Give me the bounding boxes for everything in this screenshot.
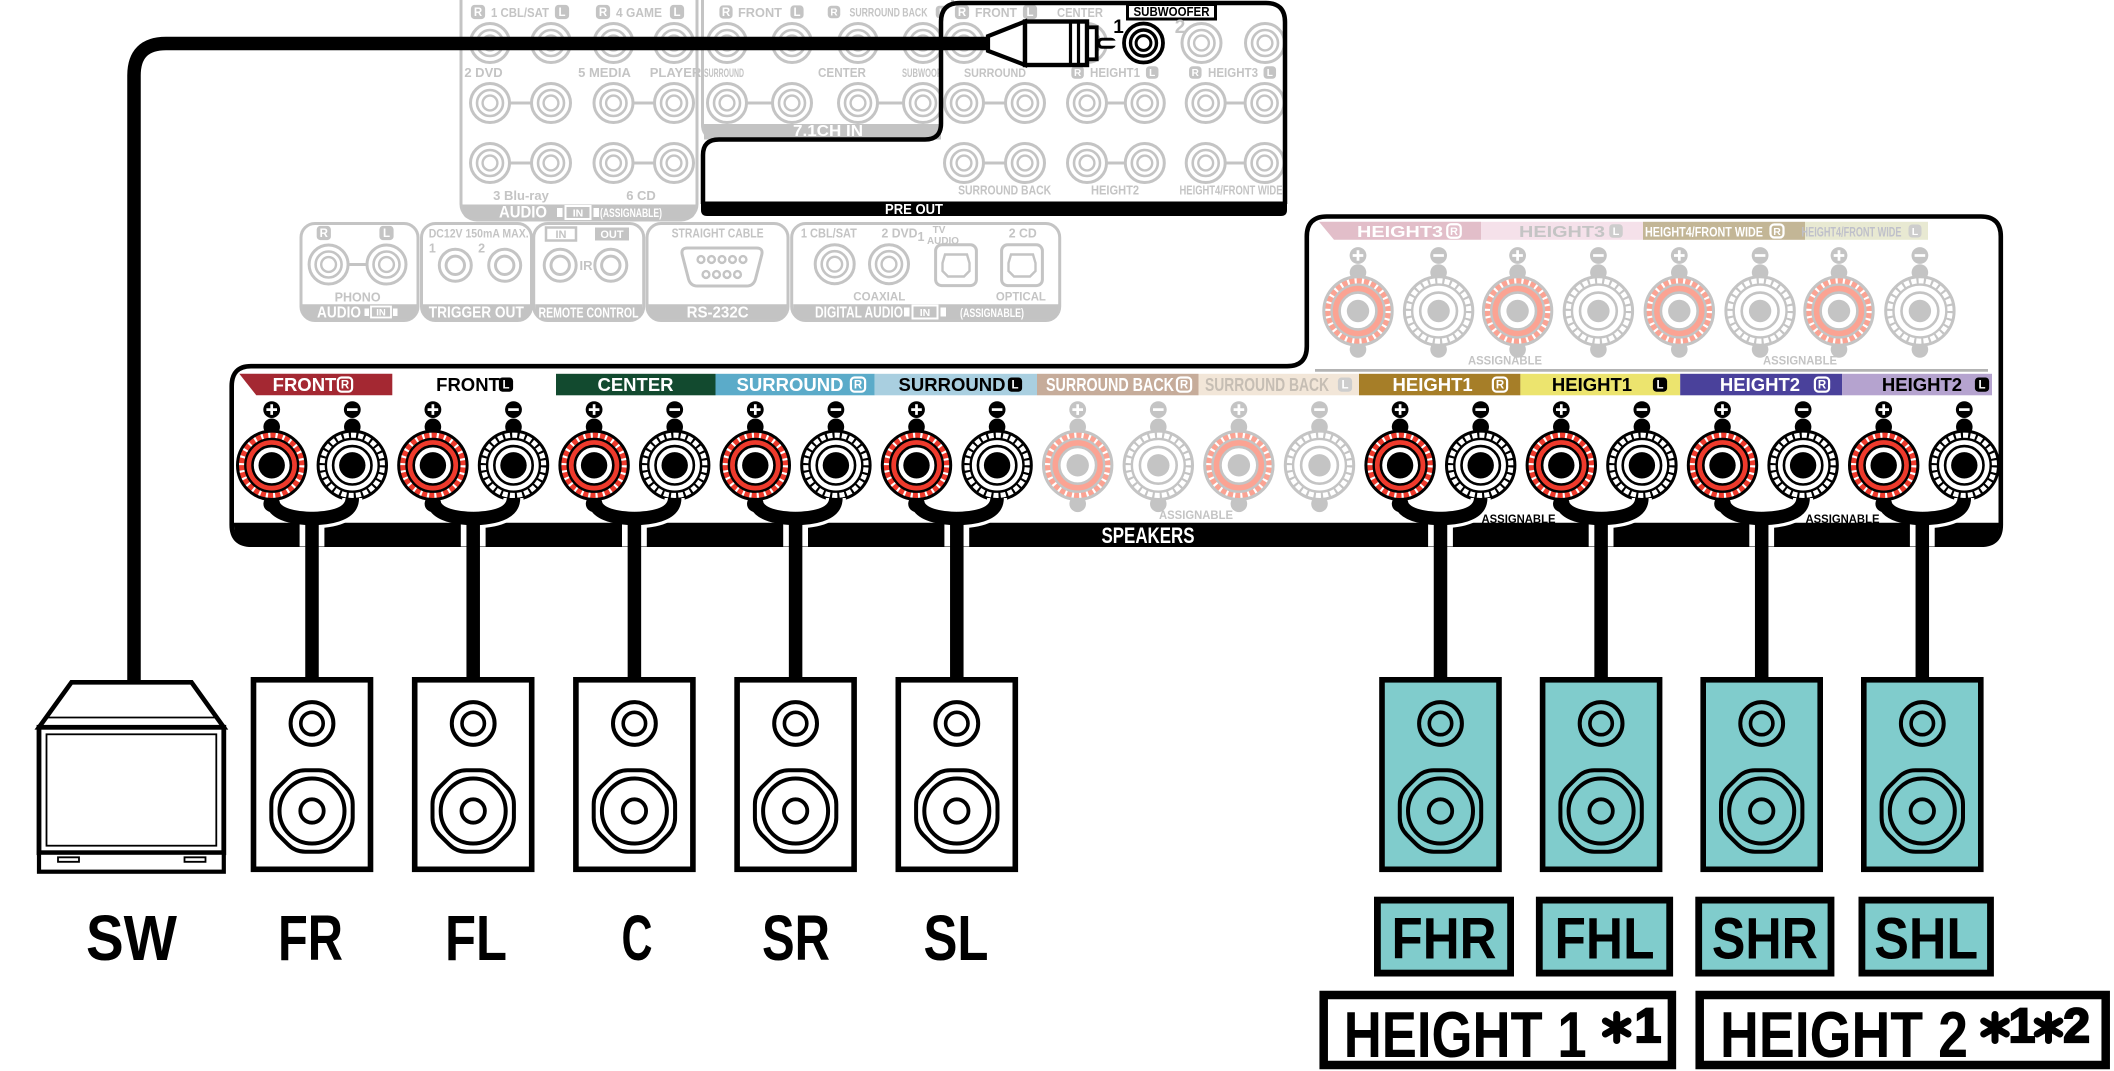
svg-text:R: R [599,7,608,19]
svg-text:IN: IN [556,229,567,241]
svg-text:CENTER: CENTER [1057,5,1104,20]
svg-text:SHL: SHL [1874,907,1978,972]
svg-text:OUT: OUT [600,229,624,241]
svg-text:IR: IR [580,258,594,273]
svg-text:ASSIGNABLE: ASSIGNABLE [1806,512,1880,526]
svg-text:R: R [474,7,483,19]
svg-text:SPEAKERS: SPEAKERS [1102,523,1195,548]
svg-text:L: L [383,228,390,240]
svg-text:R: R [1180,380,1189,392]
svg-text:R: R [830,8,838,19]
svg-text:HEIGHT2: HEIGHT2 [1091,183,1139,198]
svg-text:L: L [1149,68,1155,79]
svg-text:HEIGHT2: HEIGHT2 [1720,374,1800,395]
svg-text:IN: IN [376,308,386,319]
svg-text:HEIGHT4/FRONT WIDE: HEIGHT4/FRONT WIDE [1802,224,1902,239]
svg-text:2 DVD: 2 DVD [464,65,502,80]
svg-text:1: 1 [918,230,925,244]
svg-text:L: L [1912,226,1919,238]
svg-text:STRAIGHT CABLE: STRAIGHT CABLE [672,226,764,241]
svg-text:ASSIGNABLE: ASSIGNABLE [1482,512,1556,526]
svg-text:IN: IN [573,207,584,219]
svg-text:R: R [1818,380,1827,392]
svg-text:SW: SW [86,902,178,974]
svg-text:SURROUND BACK: SURROUND BACK [958,183,1051,198]
svg-text:DC12V 150mA MAX.: DC12V 150mA MAX. [429,227,529,241]
svg-text:CENTER: CENTER [818,66,866,80]
svg-text:REMOTE CONTROL: REMOTE CONTROL [539,306,639,322]
svg-text:ASSIGNABLE: ASSIGNABLE [1763,354,1837,368]
svg-text:FRONT: FRONT [273,374,337,395]
svg-text:L: L [1656,380,1663,392]
svg-text:TV: TV [933,225,946,236]
svg-text:2: 2 [2063,1000,2090,1053]
svg-text:L: L [673,7,680,19]
svg-text:2: 2 [478,241,485,255]
svg-text:TRIGGER OUT: TRIGGER OUT [429,305,524,322]
svg-text:1 CBL/SAT: 1 CBL/SAT [801,227,857,241]
svg-text:HEIGHT 1: HEIGHT 1 [1344,999,1587,1071]
svg-text:1: 1 [2009,1000,2036,1053]
svg-text:L: L [1613,226,1620,238]
svg-text:PHONO: PHONO [335,291,381,305]
svg-text:R: R [1074,68,1082,79]
svg-text:6 CD: 6 CD [626,188,656,203]
svg-text:SURROUND BACK: SURROUND BACK [850,8,929,20]
svg-text:5 MEDIA: 5 MEDIA [578,65,631,80]
svg-text:R: R [854,380,863,392]
svg-text:1 CBL/SAT: 1 CBL/SAT [491,5,549,20]
svg-text:CENTER: CENTER [597,374,673,395]
svg-text:HEIGHT1: HEIGHT1 [1393,374,1473,395]
svg-text:R: R [958,7,967,19]
svg-text:1: 1 [1113,17,1124,38]
svg-text:OPTICAL: OPTICAL [996,290,1046,304]
svg-text:R: R [341,380,350,392]
svg-text:AUDIO: AUDIO [499,204,547,222]
svg-text:R: R [1192,68,1200,79]
svg-text:HEIGHT2: HEIGHT2 [1882,374,1962,395]
svg-text:FL: FL [445,902,507,974]
svg-text:SURROUND: SURROUND [899,374,1006,395]
svg-text:FRONT: FRONT [975,5,1017,20]
svg-text:L: L [1026,7,1033,19]
svg-text:RS-232C: RS-232C [687,305,749,322]
svg-text:1: 1 [1635,1000,1662,1053]
svg-text:SURROUND BACK: SURROUND BACK [1205,374,1329,395]
svg-text:HEIGHT1: HEIGHT1 [1090,66,1140,80]
svg-text:HEIGHT 2: HEIGHT 2 [1720,999,1968,1071]
svg-text:FHL: FHL [1555,907,1655,972]
svg-text:2: 2 [1175,17,1186,38]
svg-text:R: R [1450,226,1458,238]
svg-text:COAXIAL: COAXIAL [853,290,905,304]
svg-text:HEIGHT4/FRONT WIDE: HEIGHT4/FRONT WIDE [1645,224,1763,239]
svg-text:HEIGHT3: HEIGHT3 [1519,224,1605,241]
svg-text:(ASSIGNABLE): (ASSIGNABLE) [600,208,662,220]
svg-text:FRONT: FRONT [436,374,500,395]
svg-text:SURROUND: SURROUND [704,66,744,80]
svg-text:(ASSIGNABLE): (ASSIGNABLE) [960,308,1024,320]
svg-text:ASSIGNABLE: ASSIGNABLE [1159,508,1233,522]
svg-text:HEIGHT1: HEIGHT1 [1552,374,1632,395]
svg-text:R: R [320,228,329,240]
svg-text:2 DVD: 2 DVD [882,227,918,241]
svg-text:SURROUND: SURROUND [737,374,844,395]
svg-text:R: R [1773,226,1781,238]
svg-text:L: L [1978,380,1985,392]
svg-text:L: L [1011,380,1018,392]
svg-text:3 Blu-ray: 3 Blu-ray [493,188,549,203]
svg-text:2 CD: 2 CD [1009,227,1037,241]
svg-text:IN: IN [920,307,931,319]
svg-text:PLAYER: PLAYER [650,65,702,80]
svg-text:L: L [502,380,509,392]
svg-text:4 GAME: 4 GAME [616,5,662,20]
svg-text:FRONT: FRONT [738,5,782,20]
svg-text:R: R [722,7,731,19]
svg-text:SHR: SHR [1712,907,1818,972]
svg-text:HEIGHT3: HEIGHT3 [1208,66,1258,80]
svg-text:L: L [1267,68,1273,79]
svg-text:L: L [1341,380,1348,392]
svg-text:FHR: FHR [1392,907,1497,972]
svg-text:SURROUND BACK: SURROUND BACK [1046,374,1174,395]
svg-text:L: L [793,7,800,19]
svg-text:SL: SL [924,902,989,974]
svg-text:L: L [558,7,565,19]
svg-text:DIGITAL AUDIO: DIGITAL AUDIO [815,305,903,322]
svg-text:R: R [1496,380,1505,392]
svg-text:SR: SR [762,902,830,974]
svg-text:FR: FR [278,902,343,974]
svg-text:SURROUND: SURROUND [964,66,1026,80]
svg-text:SUBWOOFER: SUBWOOFER [1134,5,1210,19]
svg-text:HEIGHT4/FRONT WIDE: HEIGHT4/FRONT WIDE [1180,184,1283,198]
svg-text:HEIGHT3: HEIGHT3 [1357,224,1443,241]
svg-text:C: C [622,902,653,974]
svg-text:1: 1 [429,241,436,255]
svg-text:PRE OUT: PRE OUT [885,202,943,218]
svg-text:ASSIGNABLE: ASSIGNABLE [1468,354,1542,368]
svg-text:AUDIO: AUDIO [317,305,361,322]
